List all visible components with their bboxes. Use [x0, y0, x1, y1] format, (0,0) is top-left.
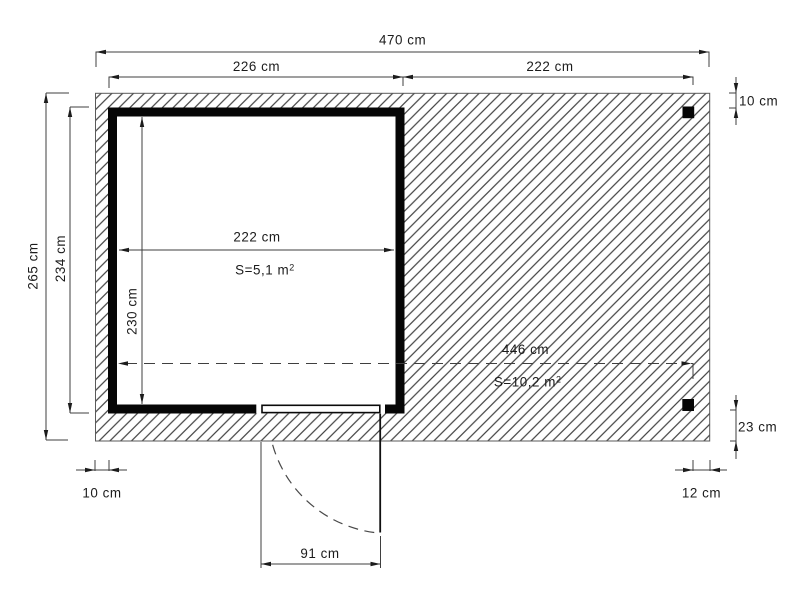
svg-text:446 cm: 446 cm — [502, 342, 549, 357]
svg-text:23 cm: 23 cm — [738, 419, 777, 434]
svg-text:234 cm: 234 cm — [53, 235, 68, 282]
svg-text:91 cm: 91 cm — [300, 546, 339, 561]
svg-text:S=5,1 m2: S=5,1 m2 — [235, 262, 295, 278]
svg-text:222 cm: 222 cm — [526, 59, 573, 74]
svg-text:230 cm: 230 cm — [125, 288, 140, 335]
svg-text:226 cm: 226 cm — [233, 59, 280, 74]
svg-text:222 cm: 222 cm — [233, 230, 280, 245]
svg-text:10 cm: 10 cm — [82, 485, 121, 500]
svg-text:265 cm: 265 cm — [26, 242, 41, 289]
svg-text:470 cm: 470 cm — [379, 33, 426, 48]
svg-text:12 cm: 12 cm — [682, 486, 721, 501]
svg-text:S=10,2 m2: S=10,2 m2 — [494, 374, 562, 390]
svg-text:10 cm: 10 cm — [739, 94, 778, 109]
